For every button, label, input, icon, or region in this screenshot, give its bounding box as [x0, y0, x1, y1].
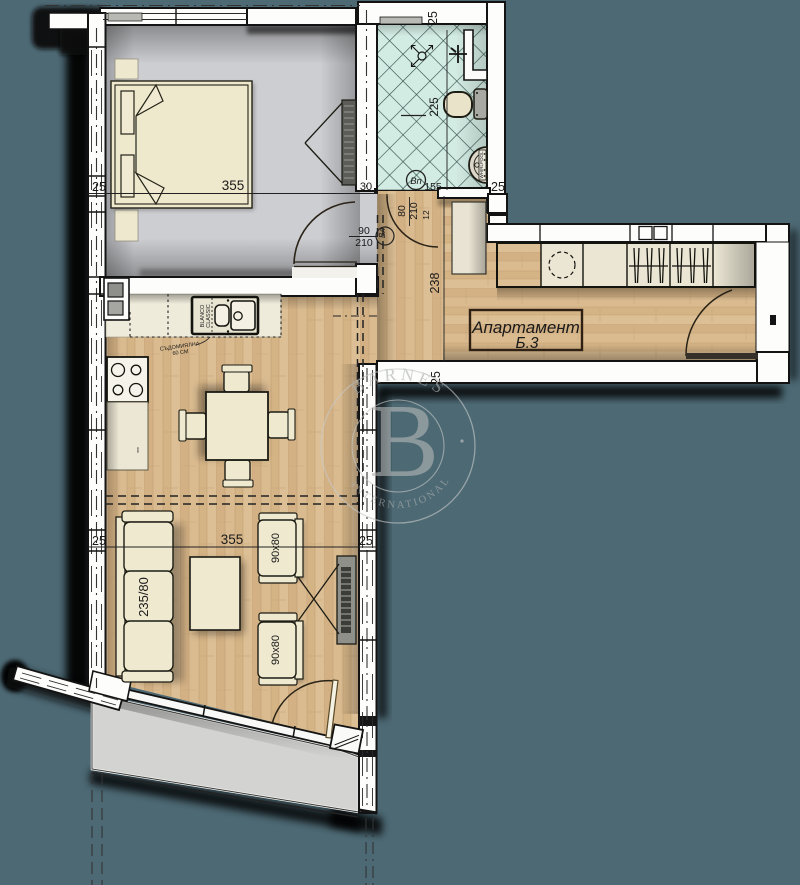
svg-text:225: 225: [429, 97, 441, 116]
svg-text:90x80: 90x80: [270, 635, 282, 665]
svg-text:25: 25: [92, 180, 106, 194]
svg-text:Б.3: Б.3: [515, 335, 538, 352]
svg-text:90x80: 90x80: [270, 533, 282, 563]
svg-text:30: 30: [360, 181, 372, 193]
svg-text:155: 155: [424, 181, 442, 193]
svg-text:355: 355: [222, 178, 245, 193]
svg-text:80: 80: [396, 205, 408, 217]
svg-text:Вп: Вп: [410, 176, 422, 187]
svg-text:210: 210: [355, 237, 373, 249]
svg-text:12: 12: [421, 210, 431, 220]
svg-text:25: 25: [92, 534, 106, 548]
svg-text:25: 25: [426, 11, 440, 25]
svg-text:***: ***: [137, 447, 143, 453]
svg-text:B: B: [369, 382, 439, 499]
svg-text:25: 25: [491, 180, 505, 194]
svg-text:235/80: 235/80: [136, 577, 151, 617]
svg-text:WHIRLPOOL: WHIRLPOOL: [479, 151, 484, 179]
svg-text:90: 90: [358, 225, 370, 237]
svg-text:25: 25: [359, 534, 373, 548]
svg-text:238: 238: [428, 273, 442, 294]
svg-text:CLASSIC: CLASSIC: [206, 304, 212, 328]
svg-text:Вл: Вл: [378, 228, 387, 238]
svg-text:355: 355: [221, 532, 244, 547]
